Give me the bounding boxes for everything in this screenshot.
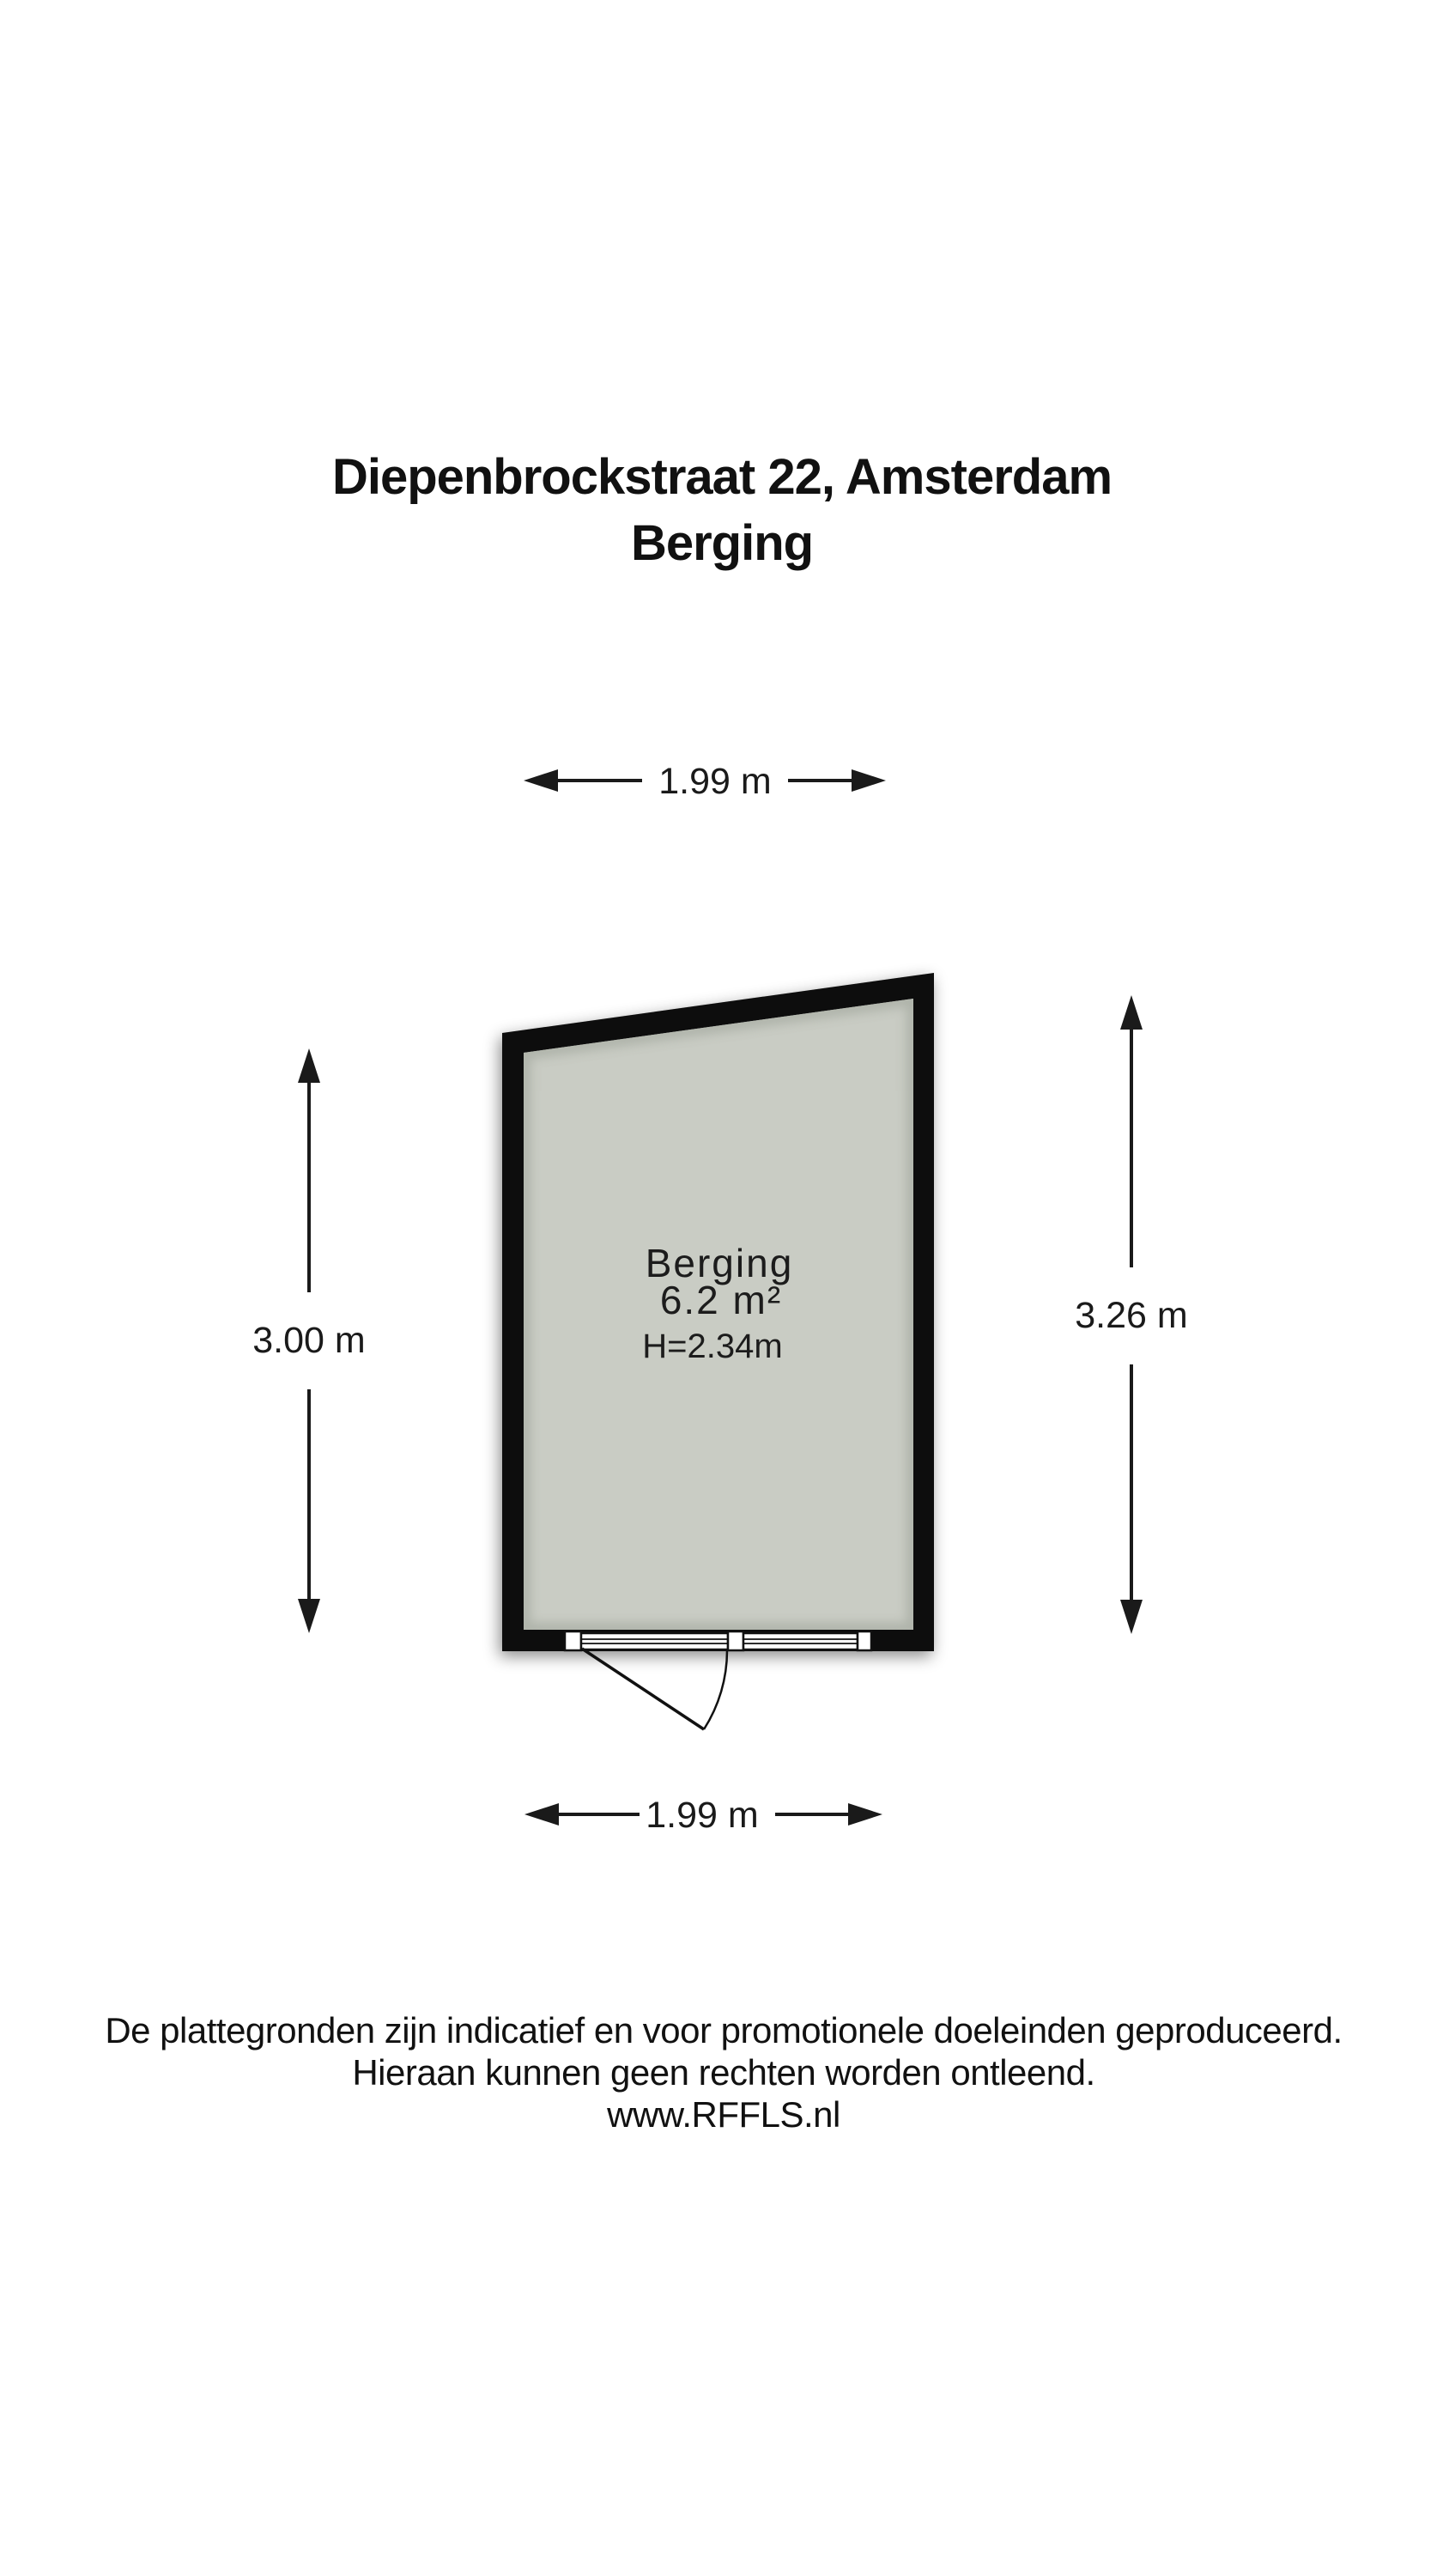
footer-line-1: De plattegronden zijn indicatief en voor… <box>105 2010 1342 2050</box>
door-jamb-left <box>565 1631 581 1650</box>
dimension-top-arrowhead-left <box>524 769 558 792</box>
dimension-top-arrowhead-right <box>852 769 886 792</box>
dimension-top-label: 1.99 m <box>658 761 771 802</box>
window-panel <box>743 1633 858 1649</box>
page-title: Diepenbrockstraat 22, Amsterdam Berging <box>332 449 1112 571</box>
dimension-bottom-arrowhead-left <box>524 1803 559 1826</box>
dimension-left-label: 3.00 m <box>252 1320 365 1361</box>
dimension-left: 3.00 m <box>252 1048 365 1633</box>
footer-line-2: Hieraan kunnen geen rechten worden ontle… <box>352 2052 1094 2093</box>
dimension-right-arrowhead-top <box>1120 995 1143 1030</box>
door-panel <box>581 1633 728 1649</box>
window-jamb-right <box>858 1631 871 1650</box>
room-labels: Berging 6.2 m² H=2.34m <box>642 1241 793 1365</box>
footer-website-link: www.RFFLS.nl <box>606 2094 840 2135</box>
dimension-right-arrowhead-bottom <box>1120 1600 1143 1634</box>
title-address: Diepenbrockstraat 22, Amsterdam <box>332 449 1112 505</box>
dimension-left-arrowhead-top <box>298 1048 320 1083</box>
bottom-wall-openings <box>565 1631 871 1729</box>
dimension-bottom: 1.99 m <box>524 1795 882 1836</box>
door-window-center-post <box>728 1631 743 1650</box>
room-area-label: 6.2 m² <box>660 1278 782 1322</box>
dimension-right: 3.26 m <box>1075 995 1187 1634</box>
dimension-top: 1.99 m <box>524 761 886 802</box>
floorplan-canvas: Diepenbrockstraat 22, Amsterdam Berging … <box>0 0 1449 2576</box>
door-swing-arc <box>704 1650 727 1729</box>
dimension-bottom-label: 1.99 m <box>646 1795 758 1836</box>
dimension-right-label: 3.26 m <box>1075 1295 1187 1336</box>
dimension-bottom-arrowhead-right <box>848 1803 882 1826</box>
door-leaf <box>582 1649 704 1729</box>
title-room-type: Berging <box>631 515 813 571</box>
room-ceiling-height-label: H=2.34m <box>642 1327 782 1365</box>
dimension-left-arrowhead-bottom <box>298 1599 320 1633</box>
footer-disclaimer: De plattegronden zijn indicatief en voor… <box>105 2010 1342 2135</box>
